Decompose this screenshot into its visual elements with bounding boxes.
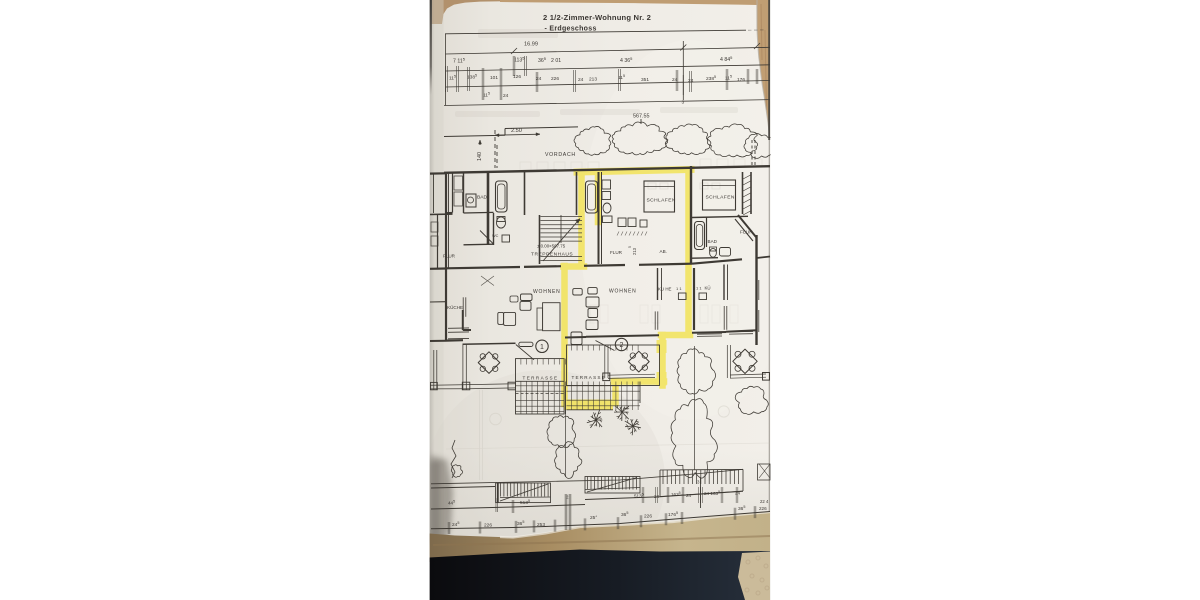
svg-text:BAD: BAD — [708, 239, 718, 244]
svg-text:1 1: 1 1 — [696, 285, 702, 290]
svg-text:TREPPENHAUS: TREPPENHAUS — [531, 252, 573, 258]
svg-text:253: 253 — [537, 522, 545, 528]
svg-text:126: 126 — [513, 74, 521, 80]
svg-text:24 1635: 24 1635 — [704, 490, 720, 496]
svg-text:3: 3 — [682, 100, 685, 106]
svg-text:1 1: 1 1 — [676, 286, 682, 291]
svg-text:KU HE: KU HE — [658, 287, 671, 292]
svg-text:24: 24 — [686, 493, 692, 498]
svg-text:VORDACH: VORDACH — [545, 152, 576, 158]
svg-text:AB.: AB. — [660, 249, 667, 254]
svg-text:TERRASSE: TERRASSE — [523, 376, 559, 381]
svg-text:101: 101 — [490, 75, 498, 81]
svg-text:2: 2 — [620, 342, 624, 349]
svg-text:24: 24 — [688, 78, 694, 84]
svg-text:24: 24 — [578, 77, 584, 83]
svg-text:226: 226 — [551, 76, 559, 82]
svg-text:2.50: 2.50 — [511, 128, 522, 134]
svg-text:BAD: BAD — [477, 195, 488, 201]
svg-text:SCHLAFEN: SCHLAFEN — [647, 198, 676, 204]
svg-text:FLUR: FLUR — [740, 230, 753, 236]
svg-text:213: 213 — [632, 247, 637, 255]
svg-text:140: 140 — [477, 152, 483, 161]
svg-text:TERRASSE: TERRASSE — [572, 375, 606, 380]
svg-text:FLUR: FLUR — [610, 250, 623, 255]
svg-text:24: 24 — [672, 77, 678, 83]
svg-text:25°: 25° — [590, 515, 597, 521]
svg-text:351: 351 — [641, 77, 649, 83]
svg-text:FLUR: FLUR — [443, 254, 456, 259]
svg-text:5: 5 — [628, 246, 632, 248]
svg-text:213: 213 — [589, 77, 597, 83]
svg-text:SCHLAFEN: SCHLAFEN — [706, 195, 735, 201]
svg-text:WOHNEN: WOHNEN — [533, 289, 561, 295]
svg-text:24: 24 — [536, 76, 542, 82]
svg-text:176: 176 — [737, 77, 745, 83]
svg-text:- Erdgeschoss: - Erdgeschoss — [545, 26, 597, 33]
svg-text:226: 226 — [759, 506, 767, 511]
svg-text:16.99: 16.99 — [524, 42, 538, 48]
svg-text:567.55: 567.55 — [633, 114, 650, 120]
svg-text:24: 24 — [654, 494, 660, 499]
svg-text:WOHNEN: WOHNEN — [609, 289, 637, 295]
svg-text:226: 226 — [644, 513, 652, 519]
svg-text:22 4: 22 4 — [760, 499, 769, 504]
svg-text:1: 1 — [540, 344, 544, 351]
svg-text:24: 24 — [503, 93, 509, 99]
svg-text:KÜ: KÜ — [705, 285, 711, 290]
svg-text:KÜCHE: KÜCHE — [447, 304, 463, 310]
svg-text:226: 226 — [484, 523, 492, 529]
svg-text:2 01: 2 01 — [551, 58, 561, 64]
svg-text:WC: WC — [492, 234, 499, 238]
svg-text:± 0.00×567.75: ± 0.00×567.75 — [537, 244, 566, 249]
svg-text:2 1/2-Zimmer-Wohnung Nr. 2: 2 1/2-Zimmer-Wohnung Nr. 2 — [543, 13, 651, 22]
